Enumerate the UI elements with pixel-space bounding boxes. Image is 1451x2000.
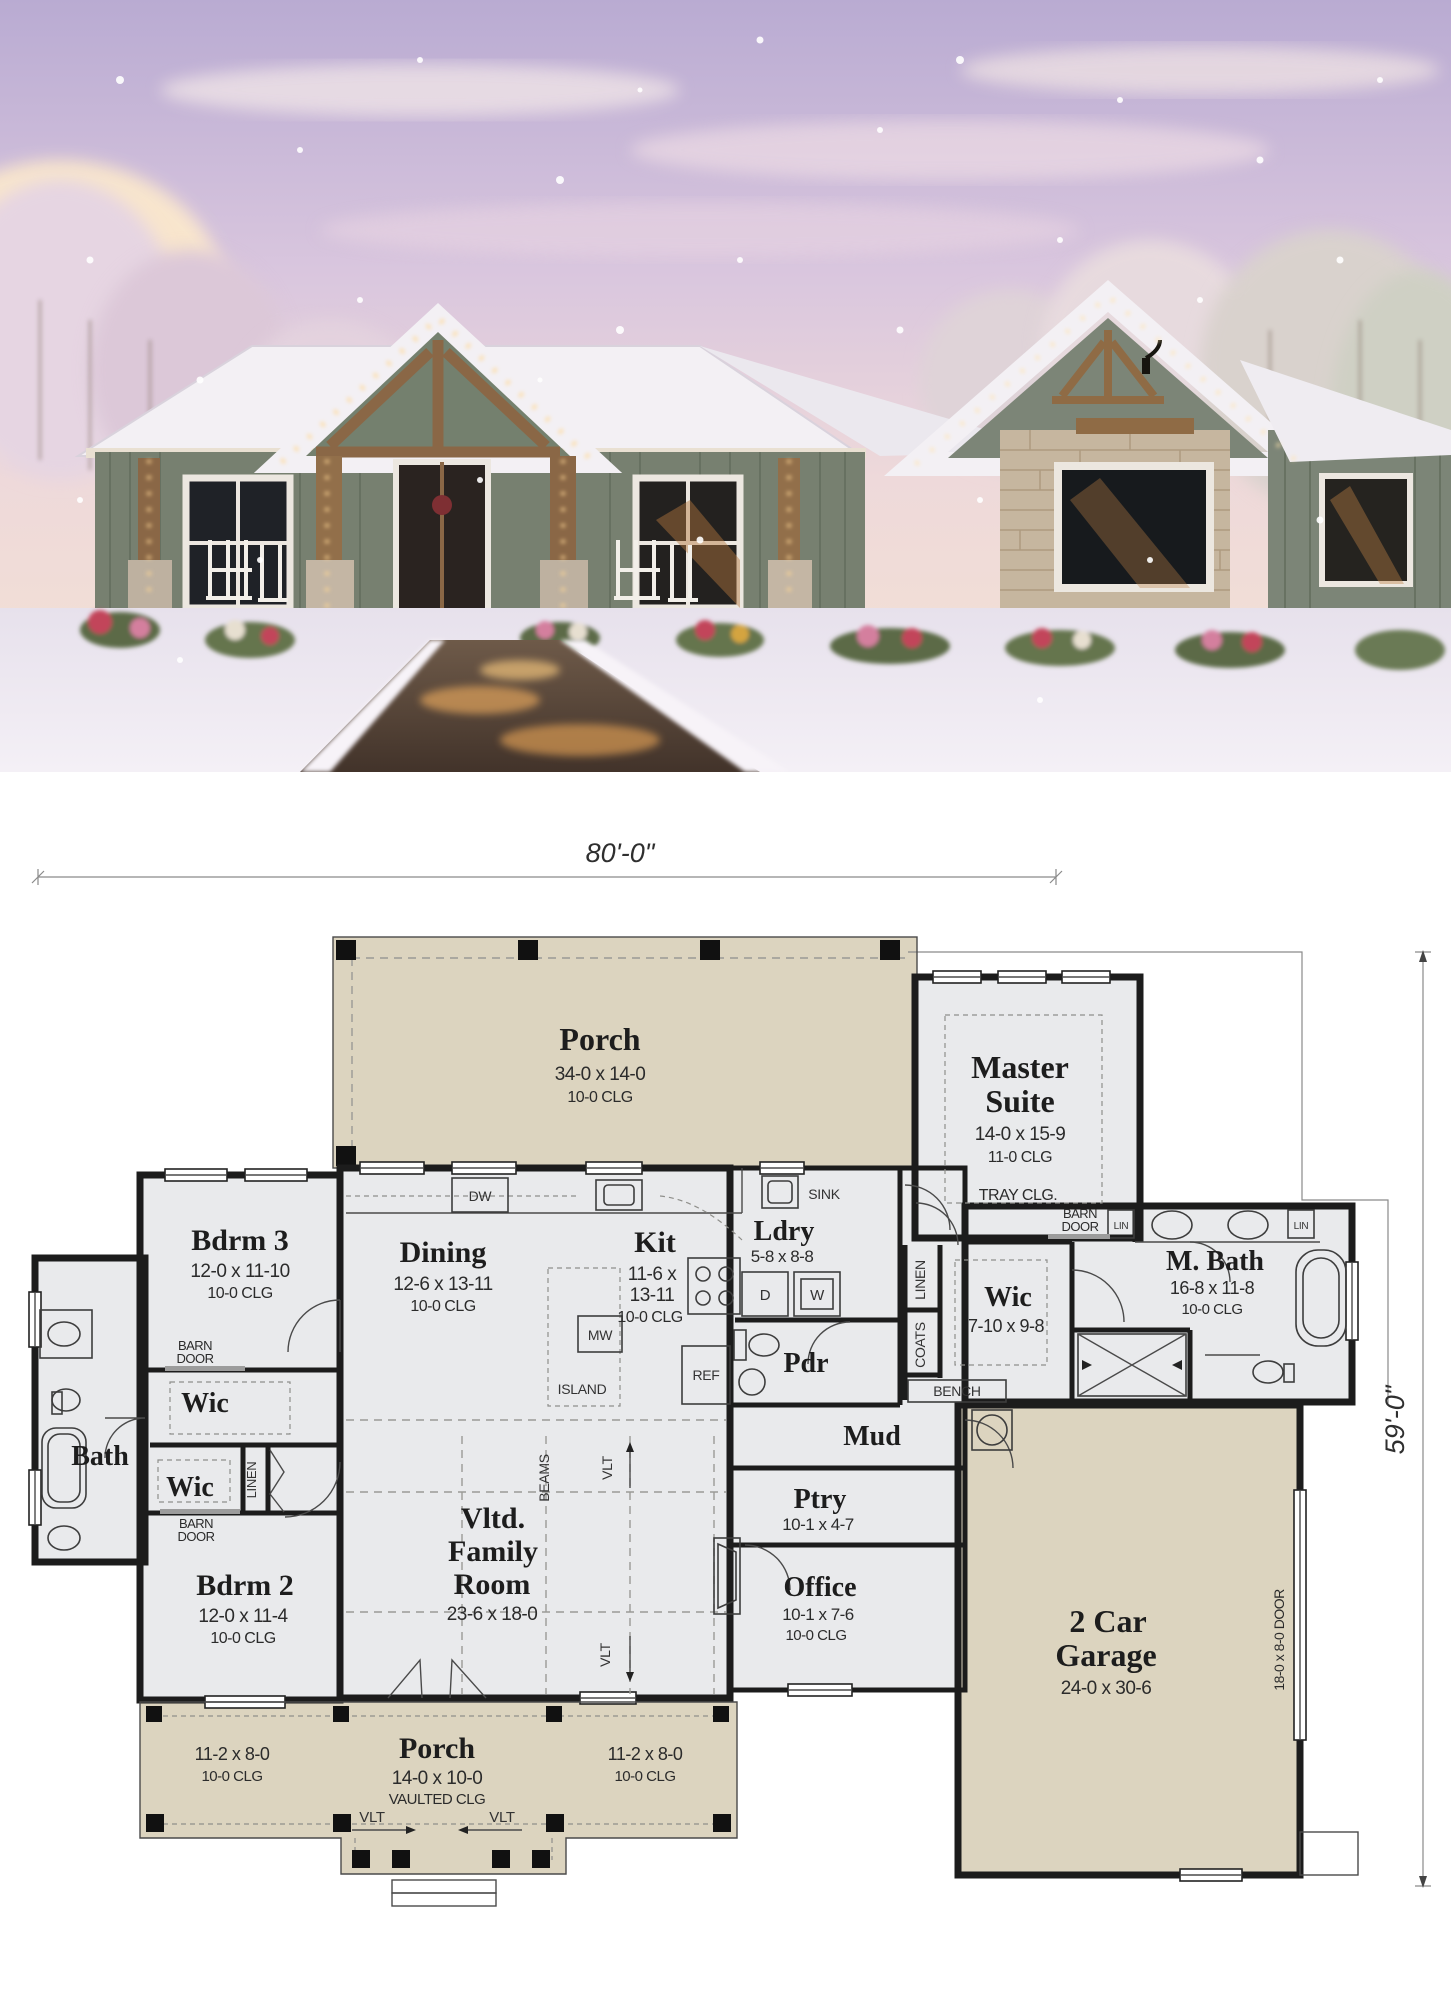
mbath-name: M. Bath [1166,1246,1264,1277]
lin-label-1: LIN [1114,1221,1129,1232]
ptry-size: 10-1 x 4-7 [782,1515,854,1534]
vlt-family-up: VLT [599,1455,615,1479]
linen-left-label: LINEN [244,1462,259,1499]
wic-lower-name: Wic [166,1472,214,1503]
office-name: Office [783,1572,856,1603]
sink-label: SINK [808,1186,840,1202]
office-clg: 10-0 CLG [785,1627,846,1644]
garage-door-label: 18-0 x 8-0 DOOR [1271,1589,1287,1691]
bdrm2-size: 12-0 x 11-4 [198,1606,288,1627]
floor-plan: Porch 34-0 x 14-0 10-0 CLG [0,772,1451,2000]
bdrm3-size: 12-0 x 11-10 [190,1261,289,1282]
mw-label: MW [588,1327,613,1343]
garage-name-2: Garage [1055,1637,1156,1673]
wic-upper-name: Wic [181,1388,229,1419]
porch-top-clg: 10-0 CLG [567,1089,632,1106]
family-name-3: Room [454,1568,531,1601]
bdrm3-barn-2: DOOR [177,1351,214,1366]
coats-label: COATS [912,1322,928,1368]
bdrm2-name: Bdrm 2 [196,1569,294,1602]
bdrm2-clg: 10-0 CLG [210,1630,275,1647]
linen-hall-label: LINEN [912,1260,928,1300]
porch-bottom-name: Porch [399,1732,475,1765]
kit-name: Kit [634,1226,676,1259]
wic2-barn-2: DOOR [178,1529,215,1544]
master-size: 14-0 x 15-9 [975,1124,1066,1145]
bdrm3-clg: 10-0 CLG [207,1285,272,1302]
master-barn-2: DOOR [1062,1219,1099,1234]
bath-name: Bath [71,1441,129,1472]
vlt-porch-right: VLT [489,1809,515,1826]
dimension-right: 59'-0" [1380,950,1431,1888]
front-door [396,462,488,614]
ldry-name: Ldry [754,1216,815,1247]
ldry-size: 5-8 x 8-8 [751,1247,814,1266]
master-name-2: Suite [985,1083,1054,1119]
d-label: D [760,1287,771,1304]
house-exterior-photo [0,0,1451,772]
family-name-2: Family [448,1535,538,1568]
mbath-clg: 10-0 CLG [1181,1301,1242,1318]
dining-size: 12-6 x 13-11 [393,1274,492,1295]
master-tray: TRAY CLG. [979,1187,1057,1204]
island-label: ISLAND [558,1381,607,1397]
porch-right-clg: 10-0 CLG [614,1768,675,1785]
dining-clg: 10-0 CLG [410,1298,475,1315]
dimension-top: 80'-0" [32,838,1062,885]
porch-right-size: 11-2 x 8-0 [608,1744,683,1764]
porch-left-size: 11-2 x 8-0 [195,1744,270,1764]
wic-master-size: 7-10 x 9-8 [968,1316,1045,1336]
page: Porch 34-0 x 14-0 10-0 CLG [0,0,1451,2000]
vlt-porch-left: VLT [359,1809,385,1826]
bench-label: BENCH [933,1383,981,1399]
porch-bottom-clg: VAULTED CLG [389,1791,485,1808]
dim-right-label: 59'-0" [1380,1384,1410,1454]
family-size: 23-6 x 18-0 [447,1604,538,1625]
dim-top-label: 80'-0" [586,838,656,868]
ptry-name: Ptry [794,1484,847,1515]
far-right-window [1322,476,1410,584]
pdr-name: Pdr [783,1348,828,1379]
steps-icon [392,1880,496,1893]
office-size: 10-1 x 7-6 [782,1605,854,1624]
bdrm3-name: Bdrm 3 [191,1224,289,1257]
porch-top-size: 34-0 x 14-0 [555,1064,646,1085]
kit-size-2: 13-11 [630,1285,675,1306]
garage-size: 24-0 x 30-6 [1061,1678,1152,1699]
ref-label: REF [692,1367,719,1383]
door-wreath-icon [432,495,452,515]
porch-left-clg: 10-0 CLG [201,1768,262,1785]
garage-name-1: 2 Car [1069,1603,1146,1639]
dining-name: Dining [400,1236,487,1269]
porch-top-name: Porch [559,1021,640,1057]
master-clg: 11-0 CLG [988,1149,1052,1166]
mud-name: Mud [843,1421,901,1452]
kit-clg: 10-0 CLG [617,1309,682,1326]
family-name-1: Vltd. [461,1502,525,1535]
vlt-family-down: VLT [597,1642,613,1666]
wic-master-name: Wic [984,1282,1032,1313]
mbath-size: 16-8 x 11-8 [1170,1278,1255,1298]
kit-size-1: 11-6 x [628,1264,677,1285]
dw-label: DW [469,1188,493,1204]
w-label: W [810,1287,825,1304]
porch-bottom-size: 14-0 x 10-0 [392,1768,483,1789]
master-name-1: Master [971,1049,1069,1085]
beams-label: BEAMS [536,1454,552,1502]
lin-label-2: LIN [1294,1221,1309,1232]
